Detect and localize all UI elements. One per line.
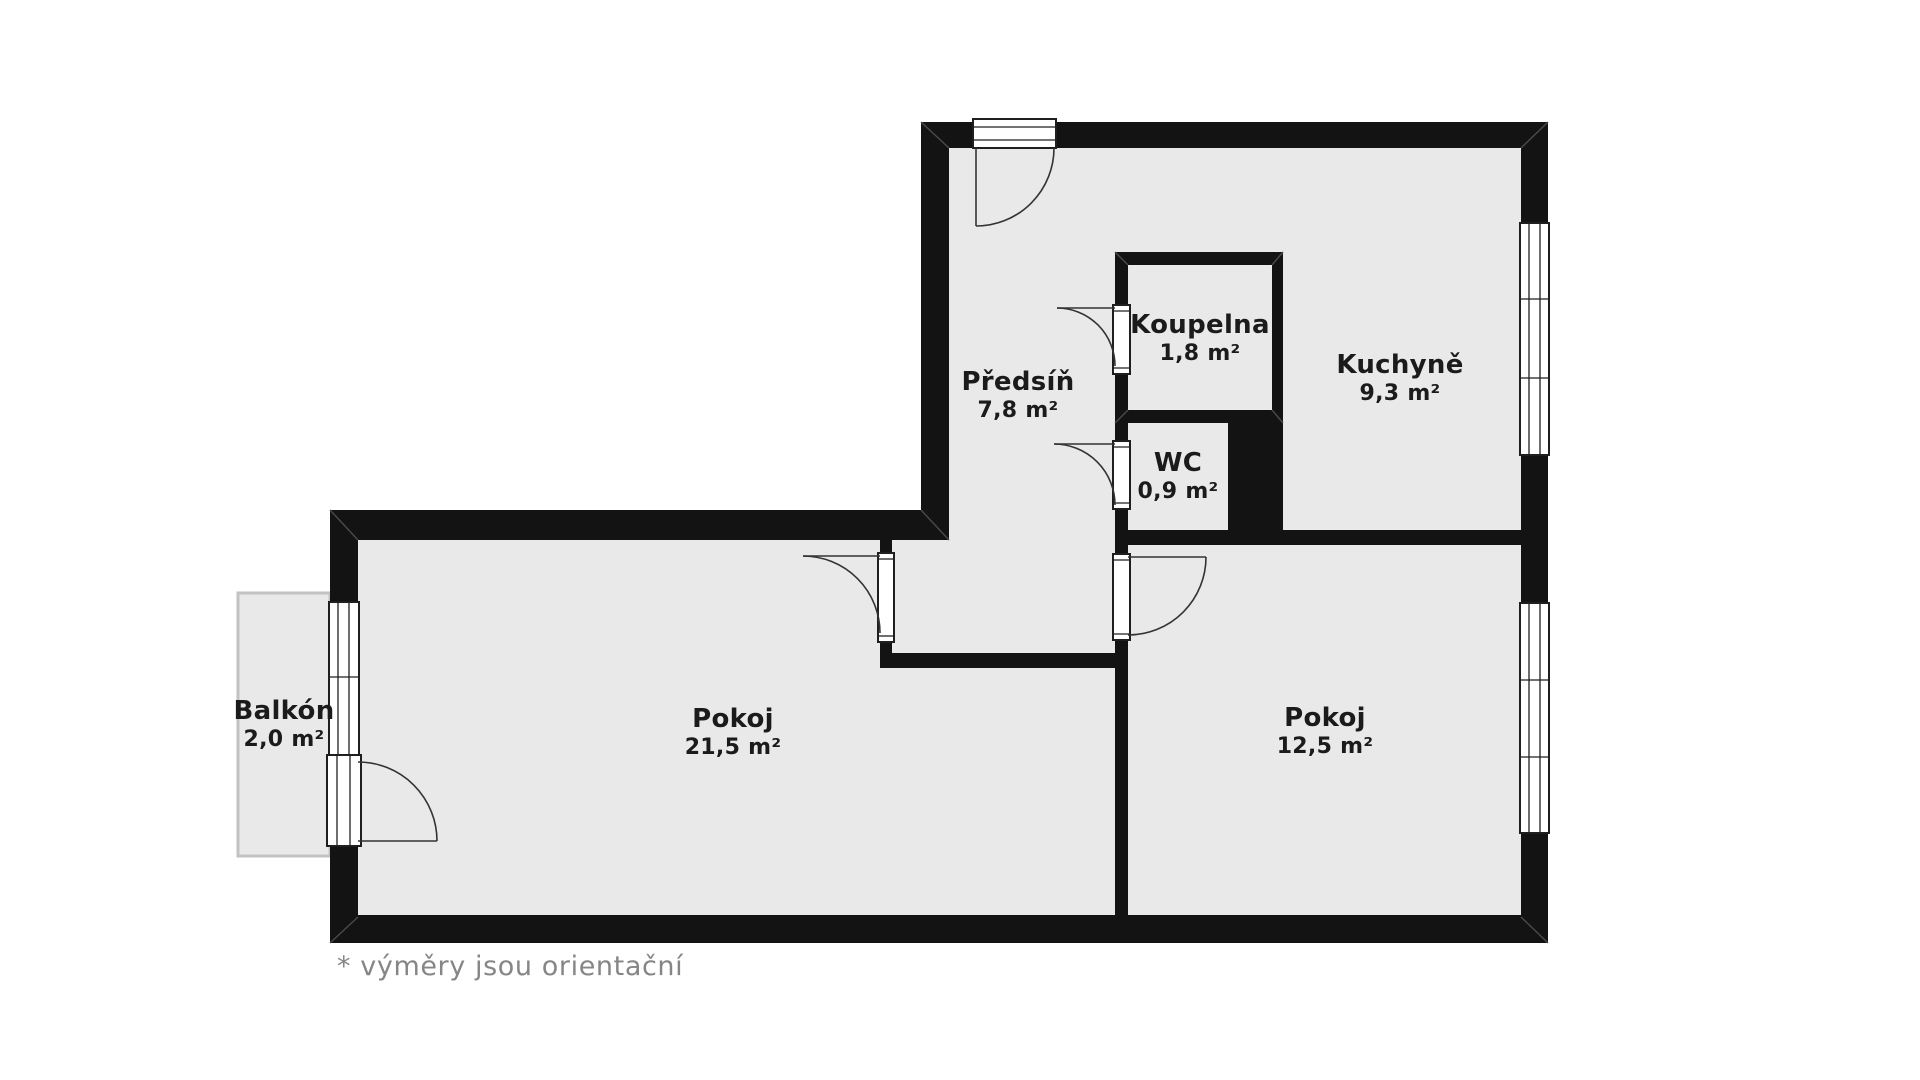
door-frame-wc: [1113, 441, 1130, 509]
wall-mid-horizontal: [1115, 530, 1548, 545]
window-balcony: [329, 602, 359, 757]
wall-koupelna-top: [1115, 252, 1283, 265]
door-frame-room-right: [1113, 554, 1130, 640]
area-disclaimer-note: * výměry jsou orientační: [337, 951, 683, 982]
wall-koupelna-right: [1272, 252, 1283, 423]
door-frame-balcony: [327, 755, 361, 846]
wall-bottom: [330, 915, 1548, 943]
wall-shaft-block: [1228, 410, 1283, 545]
wall-corridor-bottom: [880, 653, 1116, 668]
balcony-area: [238, 593, 330, 856]
window-kitchen: [1520, 223, 1549, 455]
door-frame-entrance: [973, 119, 1056, 148]
floorplan-page: Předsíň 7,8 m² Koupelna 1,8 m² WC 0,9 m²…: [0, 0, 1920, 1080]
floorplan-drawing: [0, 0, 1920, 1080]
window-room-right: [1520, 603, 1549, 833]
wall-step: [330, 510, 949, 540]
wall-left-upper: [921, 122, 949, 540]
